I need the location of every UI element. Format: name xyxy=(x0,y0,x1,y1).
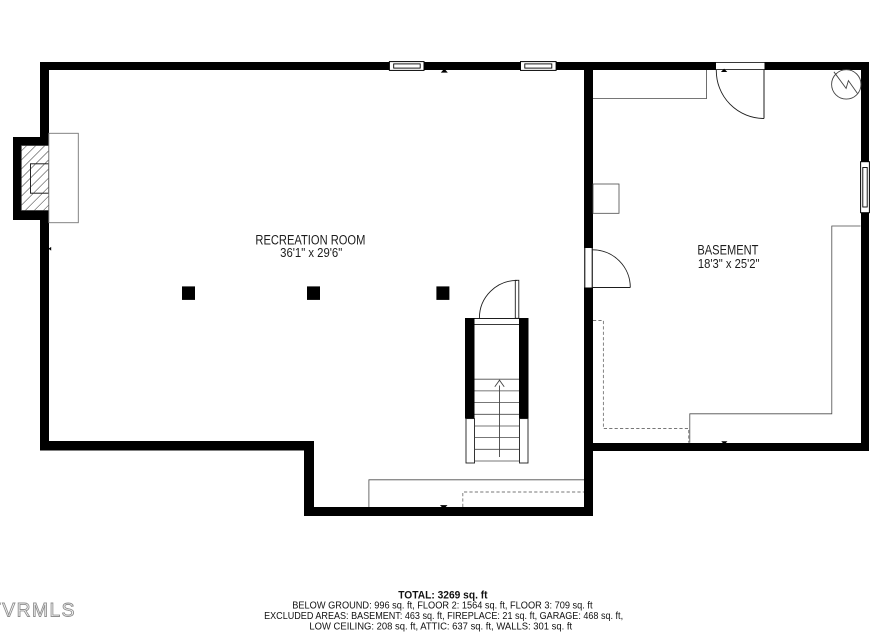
svg-text:TVRMLS: TVRMLS xyxy=(0,600,76,621)
svg-text:36'1" x 29'6": 36'1" x 29'6" xyxy=(280,245,342,260)
svg-text:18'3" x 25'2": 18'3" x 25'2" xyxy=(698,256,760,271)
svg-text:LOW CEILING: 208 sq. ft, ATTIC: LOW CEILING: 208 sq. ft, ATTIC: 637 sq. … xyxy=(309,621,572,632)
svg-text:BELOW GROUND: 996 sq. ft, FLOO: BELOW GROUND: 996 sq. ft, FLOOR 2: 1564 … xyxy=(292,601,593,612)
svg-text:TOTAL: 3269 sq. ft: TOTAL: 3269 sq. ft xyxy=(398,589,488,601)
